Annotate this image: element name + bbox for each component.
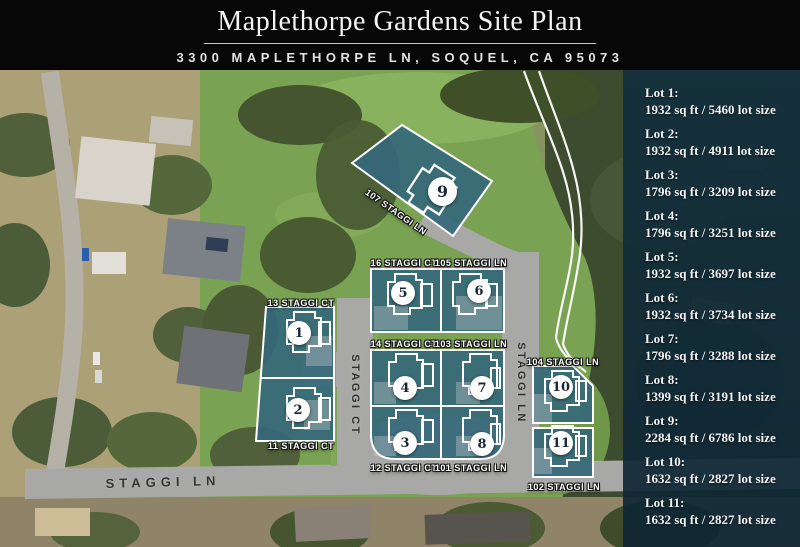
lot-summary-4: Lot 4:1796 sq ft / 3251 lot size [645, 208, 792, 241]
lot-size: 2284 sq ft / 6786 lot size [645, 430, 792, 447]
lot-summary-5: Lot 5:1932 sq ft / 3697 lot size [645, 249, 792, 282]
lot-summary-1: Lot 1:1932 sq ft / 5460 lot size [645, 85, 792, 118]
lot-number-badge-8: 8 [470, 432, 494, 456]
lot-summary-6: Lot 6:1932 sq ft / 3734 lot size [645, 290, 792, 323]
lot-size: 1632 sq ft / 2827 lot size [645, 512, 792, 529]
lot-size: 1932 sq ft / 3697 lot size [645, 266, 792, 283]
lot-name: Lot 7: [645, 331, 792, 348]
lot-number-badge-7: 7 [470, 376, 494, 400]
address-label-11-staggi-ct: 11 STAGGI CT [268, 441, 334, 451]
lot-size: 1796 sq ft / 3209 lot size [645, 184, 792, 201]
address-label-16-staggi-ct: 16 STAGGI CT [371, 258, 438, 268]
lot-name: Lot 9: [645, 413, 792, 430]
lot-number-badge-3: 3 [393, 431, 417, 455]
lot-number-badge-5: 5 [391, 281, 415, 305]
page-subtitle: 3300 MAPLETHORPE LN, SOQUEL, CA 95073 [176, 50, 623, 65]
address-label-104-staggi-ln: 104 STAGGI LN [527, 357, 599, 367]
lot-size: 1632 sq ft / 2827 lot size [645, 471, 792, 488]
street-label-staggi-ct: STAGGI CT [349, 354, 361, 436]
lot-number-badge-9: 9 [428, 177, 457, 206]
lot-number-badge-1: 1 [287, 321, 311, 345]
lot-summary-2: Lot 2:1932 sq ft / 4911 lot size [645, 126, 792, 159]
lot-size: 1796 sq ft / 3288 lot size [645, 348, 792, 365]
lot-summary-10: Lot 10:1632 sq ft / 2827 lot size [645, 454, 792, 487]
lot-name: Lot 10: [645, 454, 792, 471]
lot-name: Lot 6: [645, 290, 792, 307]
site-plan-flyer: Maplethorpe Gardens Site Plan 3300 MAPLE… [0, 0, 800, 547]
header: Maplethorpe Gardens Site Plan 3300 MAPLE… [0, 0, 800, 70]
lot-number-badge-11: 11 [549, 431, 573, 455]
lot-name: Lot 8: [645, 372, 792, 389]
lot-summary-panel: Lot 1:1932 sq ft / 5460 lot size Lot 2:1… [623, 70, 800, 547]
address-label-105-staggi-ln: 105 STAGGI LN [435, 258, 507, 268]
lot-size: 1932 sq ft / 5460 lot size [645, 102, 792, 119]
lot-name: Lot 3: [645, 167, 792, 184]
lot-summary-11: Lot 11:1632 sq ft / 2827 lot size [645, 495, 792, 528]
lot-name: Lot 4: [645, 208, 792, 225]
lot-summary-3: Lot 3:1796 sq ft / 3209 lot size [645, 167, 792, 200]
lot-name: Lot 2: [645, 126, 792, 143]
lot-number-badge-6: 6 [467, 279, 491, 303]
page-title: Maplethorpe Gardens Site Plan [217, 8, 582, 36]
lot-number-badge-4: 4 [393, 376, 417, 400]
lot-number-badge-10: 10 [549, 375, 573, 399]
lot-name: Lot 5: [645, 249, 792, 266]
street-label-staggi-ln-bottom: STAGGI LN [105, 473, 220, 491]
street-label-staggi-ln-vertical: STAGGI LN [515, 342, 527, 424]
address-label-102-staggi-ln: 102 STAGGI LN [528, 482, 600, 492]
address-label-103-staggi-ln: 103 STAGGI LN [435, 339, 507, 349]
title-divider [204, 43, 596, 44]
address-label-13-staggi-ct: 13 STAGGI CT [268, 298, 335, 308]
lot-name: Lot 1: [645, 85, 792, 102]
address-label-14-staggi-ct: 14 STAGGI CT [371, 339, 438, 349]
lot-name: Lot 11: [645, 495, 792, 512]
lot-number-badge-2: 2 [286, 398, 310, 422]
lot-summary-8: Lot 8:1399 sq ft / 3191 lot size [645, 372, 792, 405]
lot-size: 1796 sq ft / 3251 lot size [645, 225, 792, 242]
lot-size: 1399 sq ft / 3191 lot size [645, 389, 792, 406]
address-label-12-staggi-ct: 12 STAGGI CT [371, 463, 438, 473]
lot-size: 1932 sq ft / 3734 lot size [645, 307, 792, 324]
lot-size: 1932 sq ft / 4911 lot size [645, 143, 792, 160]
lot-summary-9: Lot 9:2284 sq ft / 6786 lot size [645, 413, 792, 446]
lot-summary-7: Lot 7:1796 sq ft / 3288 lot size [645, 331, 792, 364]
address-label-101-staggi-ln: 101 STAGGI LN [435, 463, 507, 473]
